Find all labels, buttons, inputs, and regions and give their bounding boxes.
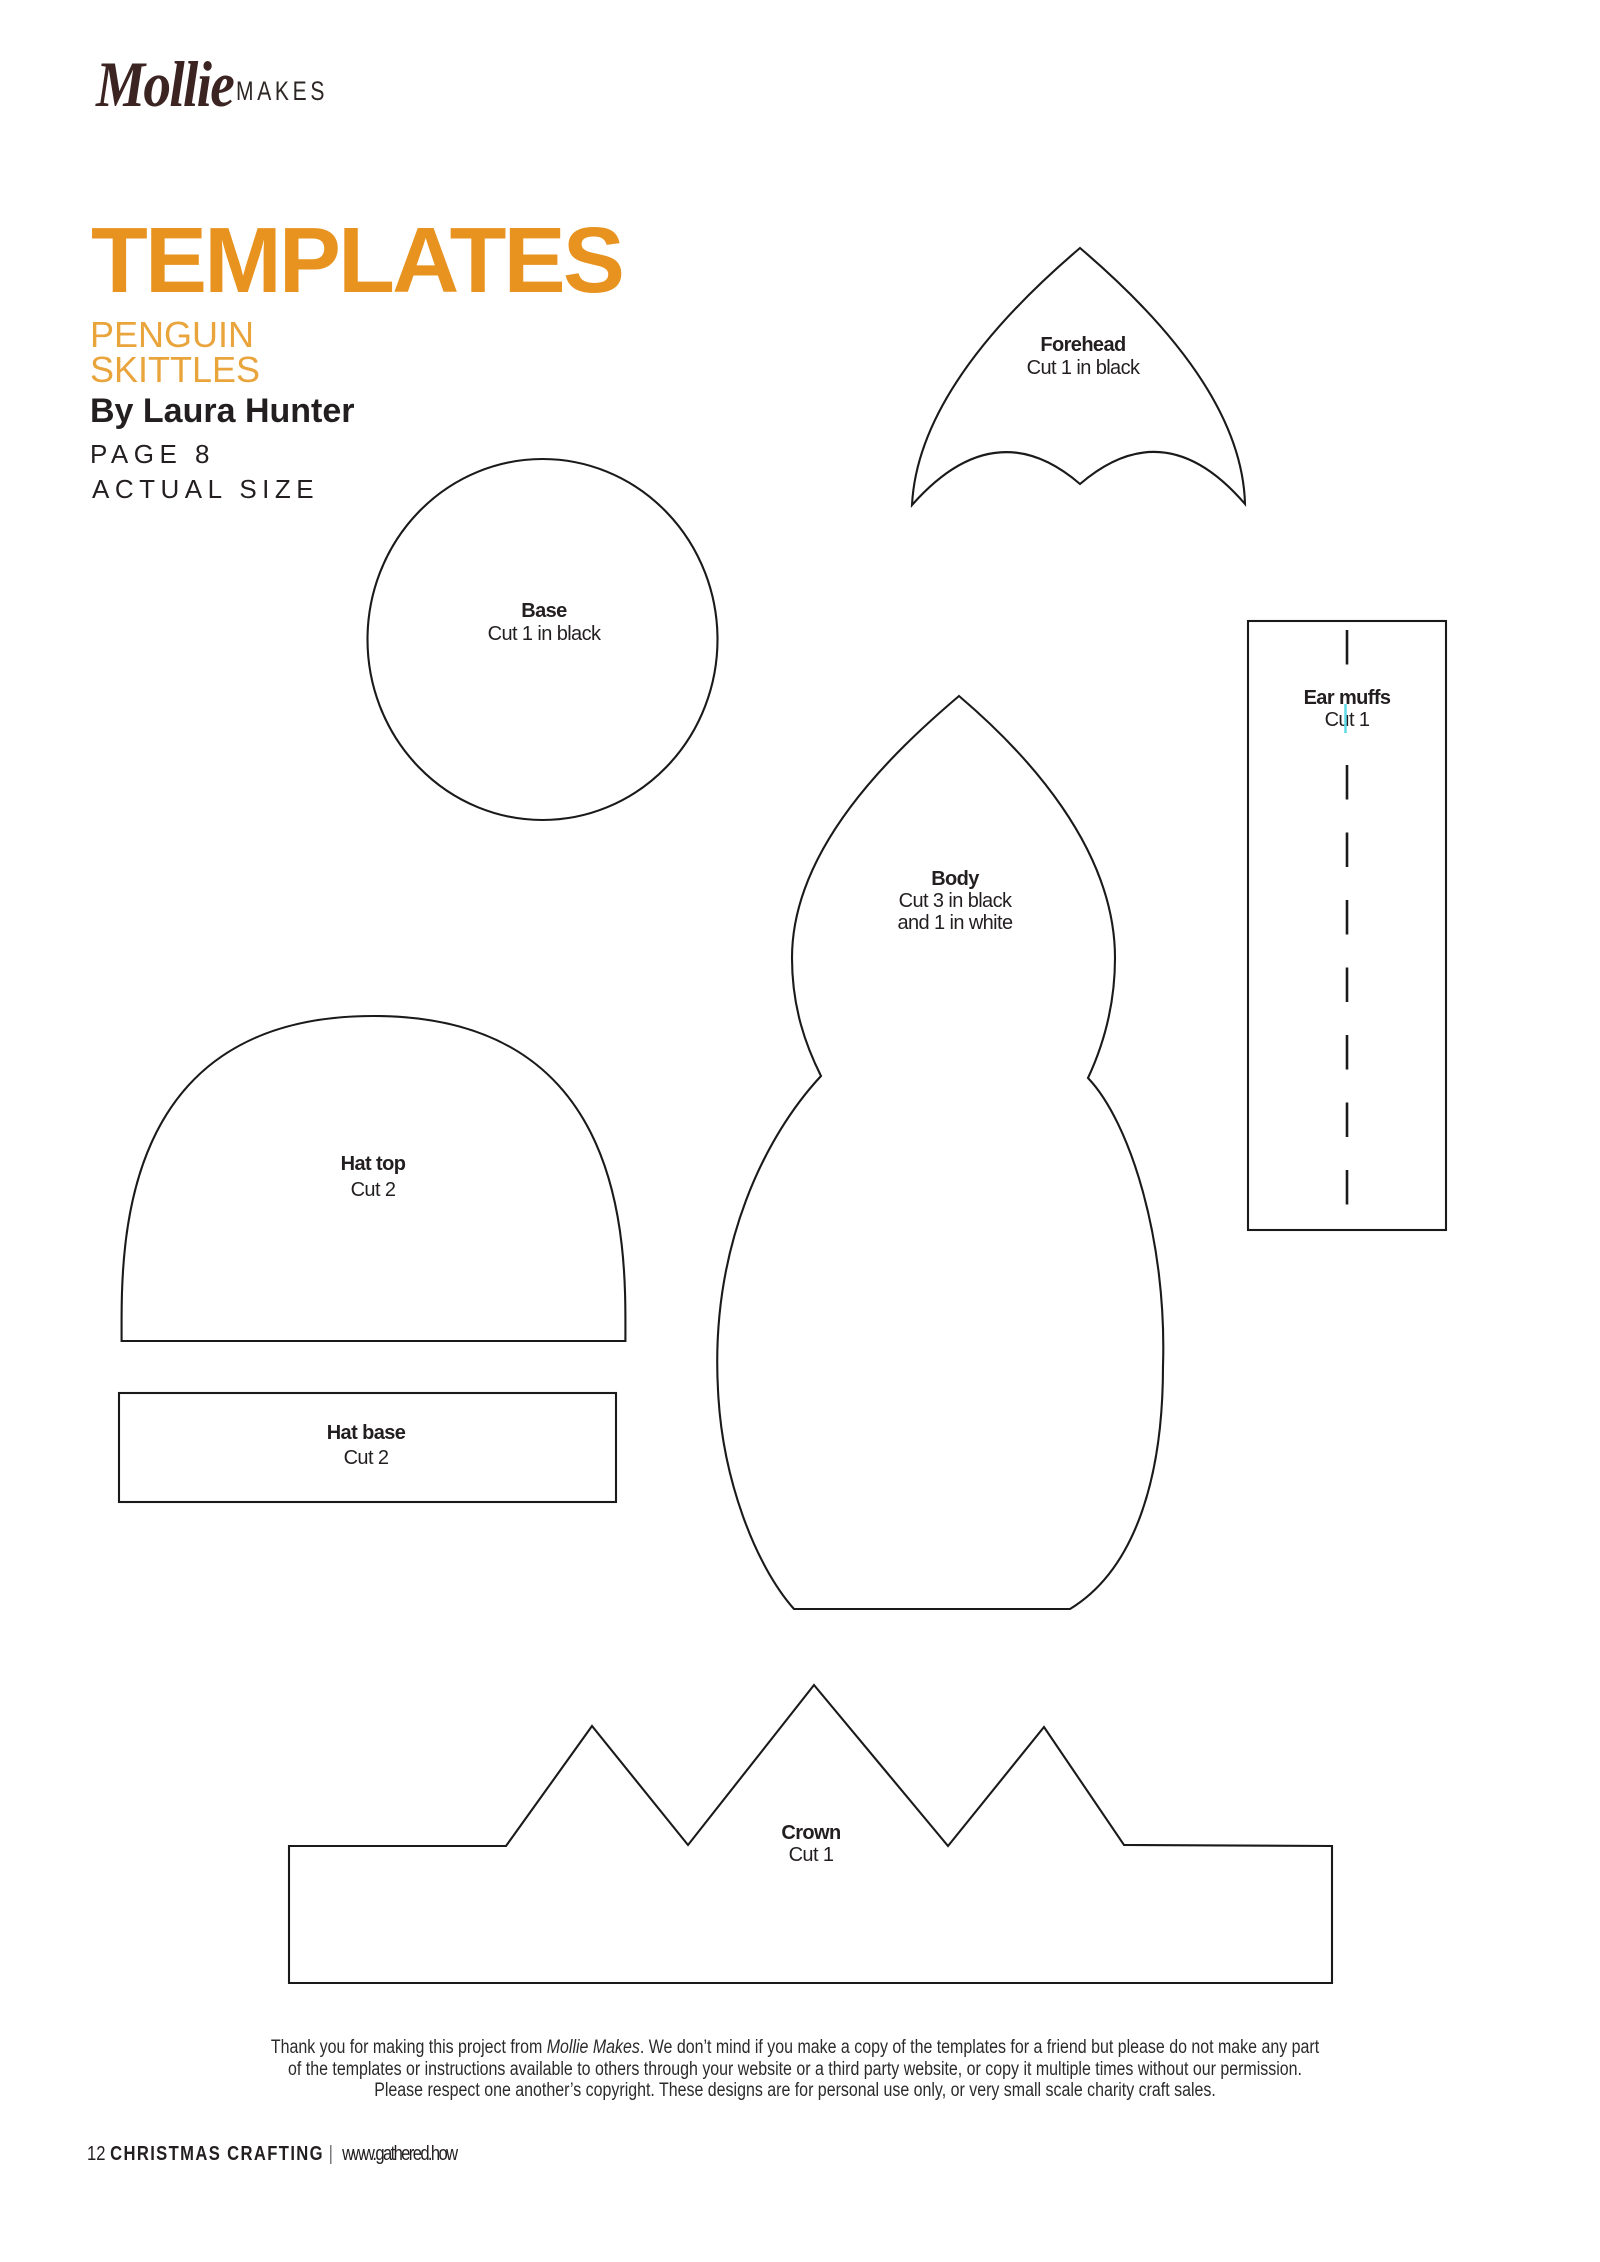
svg-text:Hat base: Hat base xyxy=(327,1422,406,1444)
svg-text:Cut 2: Cut 2 xyxy=(351,1179,396,1201)
svg-text:Cut 1: Cut 1 xyxy=(789,1844,834,1866)
svg-text:Cut 3 in black: Cut 3 in black xyxy=(899,890,1013,912)
svg-text:Ear muffs: Ear muffs xyxy=(1304,687,1391,709)
svg-text:Body: Body xyxy=(931,868,980,890)
svg-text:Cut 1: Cut 1 xyxy=(1325,709,1370,731)
svg-text:and 1 in white: and 1 in white xyxy=(897,912,1012,934)
svg-text:Forehead: Forehead xyxy=(1040,334,1125,356)
svg-text:Crown: Crown xyxy=(781,1822,840,1844)
svg-text:Cut 2: Cut 2 xyxy=(344,1447,389,1469)
svg-text:Hat top: Hat top xyxy=(341,1153,406,1175)
svg-text:Cut 1 in black: Cut 1 in black xyxy=(1027,357,1141,379)
svg-text:Base: Base xyxy=(521,600,567,622)
svg-text:Cut 1 in black: Cut 1 in black xyxy=(488,623,602,645)
